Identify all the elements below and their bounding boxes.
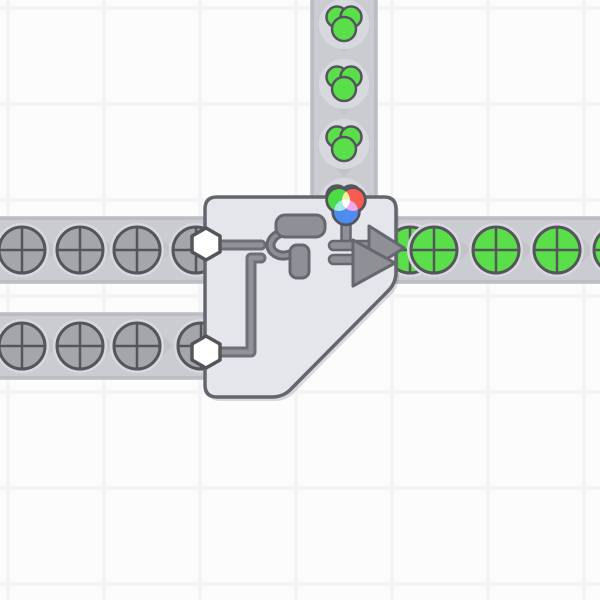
item-uncolored-circle bbox=[110, 319, 164, 373]
item-uncolored-circle bbox=[53, 223, 107, 277]
grid-line-vertical bbox=[582, 0, 586, 600]
grid-line-vertical bbox=[198, 0, 202, 600]
game-viewport[interactable] bbox=[0, 0, 600, 600]
item-green-circle bbox=[530, 223, 584, 277]
item-uncolored-circle bbox=[53, 319, 107, 373]
item-green-color-blob bbox=[319, 0, 369, 49]
input-port-hexagon-top bbox=[192, 228, 220, 260]
grid-line-vertical bbox=[486, 0, 490, 600]
input-port-hexagon-bottom bbox=[192, 336, 220, 368]
game-world-canvas[interactable] bbox=[0, 0, 600, 600]
grid-line-horizontal bbox=[0, 102, 600, 106]
grid-line-horizontal bbox=[0, 6, 600, 10]
grid-line-vertical bbox=[102, 0, 106, 600]
grid-line-horizontal bbox=[0, 582, 600, 586]
item-green-color-blob bbox=[319, 119, 369, 169]
item-green-circle bbox=[407, 223, 461, 277]
grid-line-vertical bbox=[6, 0, 10, 600]
item-green-color-blob bbox=[319, 59, 369, 109]
grid-line-vertical bbox=[390, 0, 394, 600]
item-green-circle bbox=[469, 223, 523, 277]
grid-line-horizontal bbox=[0, 486, 600, 490]
color-wheel-icon bbox=[328, 189, 364, 224]
grid-line-horizontal bbox=[0, 390, 600, 394]
item-uncolored-circle bbox=[110, 223, 164, 277]
